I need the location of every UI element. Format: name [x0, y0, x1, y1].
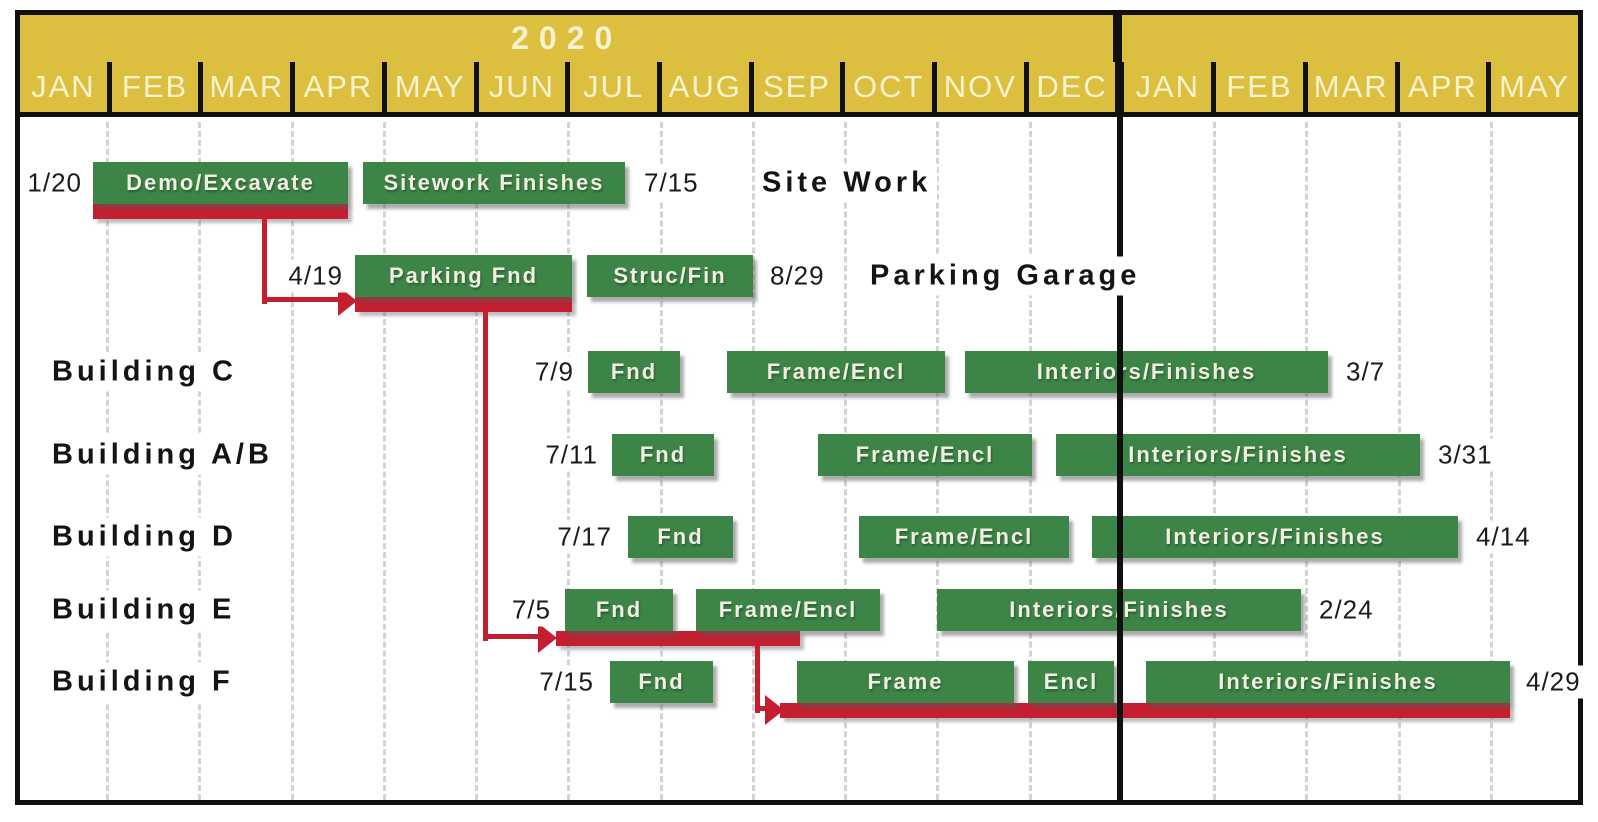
- task-bar: Encl: [1028, 661, 1114, 703]
- month-header-cell: APR: [1400, 62, 1487, 112]
- end-date-label: 4/29: [1522, 666, 1585, 699]
- month-header-cell: AUG: [662, 62, 749, 112]
- row-title: Building F: [46, 663, 240, 702]
- month-header-cell: JAN: [20, 62, 107, 112]
- year-header-row: 2020: [15, 10, 1583, 67]
- critical-path-bar: [93, 204, 348, 219]
- critical-path-bar: [780, 703, 1510, 718]
- start-date-label: 7/15: [535, 666, 598, 699]
- dependency-connector-vertical: [483, 310, 488, 641]
- end-date-label: 3/31: [1434, 439, 1497, 472]
- start-date-label: 7/17: [553, 521, 616, 554]
- row-title: Building C: [46, 353, 243, 392]
- end-date-label: 4/14: [1472, 521, 1535, 554]
- start-date-label: 4/19: [284, 260, 347, 293]
- task-bar: Fnd: [610, 661, 713, 703]
- month-header-cell: DEC: [1029, 62, 1116, 112]
- row-title: Building E: [46, 591, 241, 630]
- task-bar: Interiors/Finishes: [1092, 516, 1458, 558]
- end-date-label: 8/29: [766, 260, 829, 293]
- task-bar: Frame/Encl: [818, 434, 1032, 476]
- task-bar: Interiors/Finishes: [1146, 661, 1510, 703]
- start-date-label: 7/11: [541, 439, 602, 472]
- month-gridline: [383, 122, 386, 800]
- task-bar: Struc/Fin: [587, 255, 753, 297]
- gantt-chart: 2020 JANFEBMARAPRMAYJUNJULAUGSEPOCTNOVDE…: [0, 0, 1598, 822]
- critical-path-bar: [556, 631, 800, 646]
- row-title: Site Work: [756, 164, 937, 203]
- month-gridline: [291, 122, 294, 800]
- task-bar: Frame: [797, 661, 1014, 703]
- month-header-cell: SEP: [754, 62, 841, 112]
- year-divider-line: [1117, 117, 1123, 805]
- month-header-cell: MAR: [203, 62, 290, 112]
- task-bar: Fnd: [588, 351, 680, 393]
- month-header-cell: JAN: [1124, 62, 1211, 112]
- dependency-connector-horizontal: [483, 634, 538, 639]
- month-header-cell: MAY: [387, 62, 474, 112]
- end-date-label: 2/24: [1315, 594, 1378, 627]
- month-header-cell: APR: [295, 62, 382, 112]
- month-header-cell: FEB: [1216, 62, 1303, 112]
- task-bar: Fnd: [612, 434, 714, 476]
- year-header-2020: 2020: [20, 15, 1113, 62]
- dependency-connector-horizontal: [755, 706, 765, 711]
- end-date-label: 7/15: [640, 167, 703, 200]
- start-date-label: 7/9: [531, 356, 578, 389]
- task-bar: Demo/Excavate: [93, 162, 348, 204]
- task-bar: Fnd: [565, 589, 673, 631]
- critical-path-bar: [355, 297, 572, 312]
- dependency-connector-vertical: [262, 218, 267, 304]
- task-bar: Frame/Encl: [859, 516, 1069, 558]
- row-title: Building D: [46, 518, 243, 557]
- month-header-cell: JUN: [479, 62, 566, 112]
- dependency-arrow-icon: [538, 623, 557, 653]
- month-header-cell: OCT: [845, 62, 932, 112]
- start-date-label: 7/5: [508, 594, 555, 627]
- month-header-cell: MAR: [1308, 62, 1395, 112]
- month-header-cell: FEB: [112, 62, 199, 112]
- row-title: Building A/B: [46, 436, 279, 475]
- row-title: Parking Garage: [864, 257, 1146, 296]
- dependency-connector-vertical: [755, 644, 760, 713]
- task-bar: Parking Fnd: [355, 255, 572, 297]
- task-bar: Frame/Encl: [696, 589, 880, 631]
- task-bar: Frame/Encl: [727, 351, 945, 393]
- dependency-arrow-icon: [765, 695, 784, 725]
- task-bar: Sitework Finishes: [363, 162, 625, 204]
- year-header-next-year: [1122, 15, 1578, 62]
- task-bar: Interiors/Finishes: [1056, 434, 1420, 476]
- start-date-label: 1/20: [23, 167, 86, 200]
- task-bar: Interiors/Finishes: [965, 351, 1328, 393]
- month-header-cell: NOV: [937, 62, 1024, 112]
- month-gridline: [475, 122, 478, 800]
- month-header-cell: JUL: [570, 62, 657, 112]
- task-bar: Fnd: [628, 516, 733, 558]
- month-header-row: JANFEBMARAPRMAYJUNJULAUGSEPOCTNOVDECJANF…: [15, 62, 1583, 117]
- month-header-cell: MAY: [1491, 62, 1578, 112]
- dependency-connector-horizontal: [262, 297, 338, 302]
- end-date-label: 3/7: [1342, 356, 1389, 389]
